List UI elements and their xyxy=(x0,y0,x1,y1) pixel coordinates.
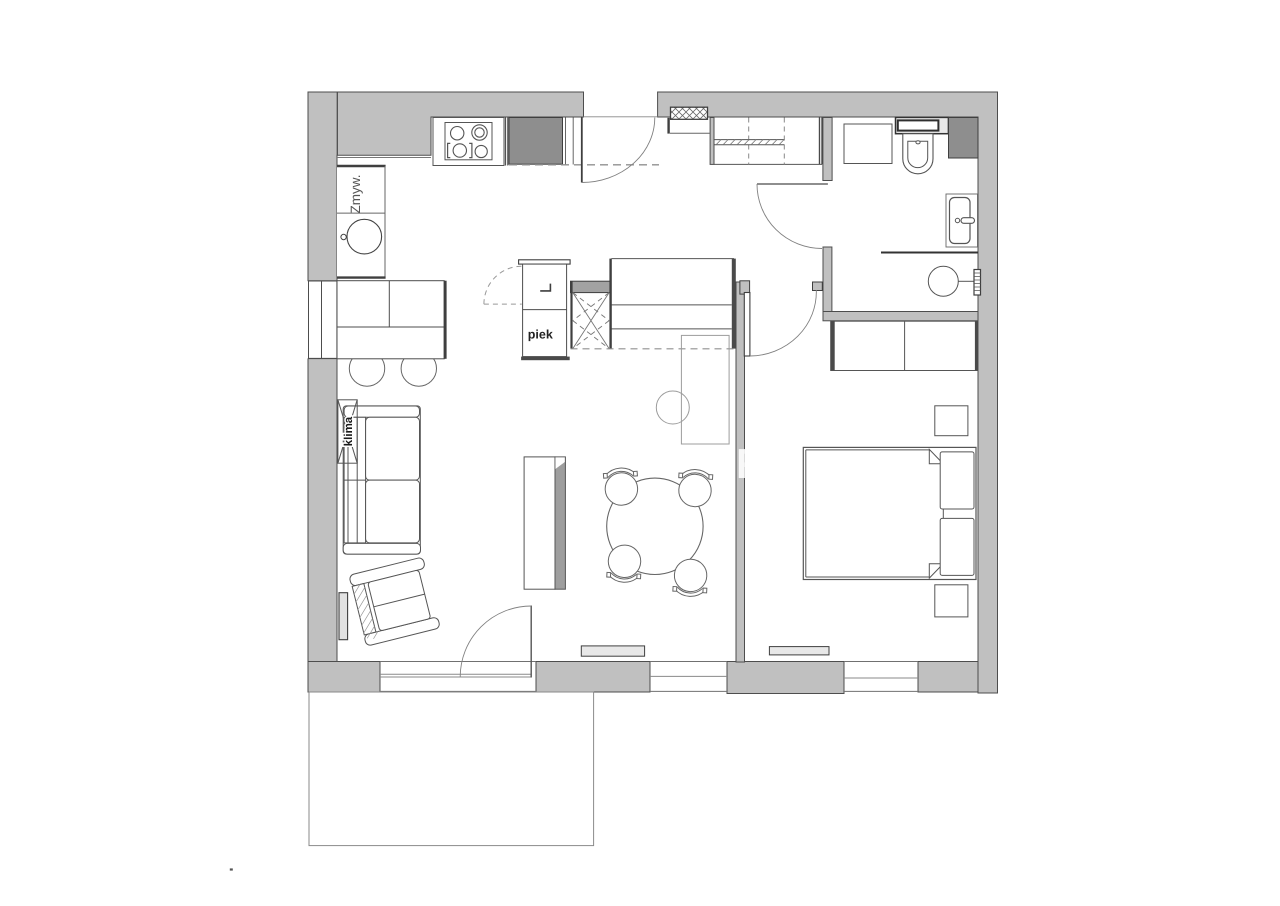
svg-text:R: R xyxy=(736,440,766,487)
svg-text:klima: klima xyxy=(343,416,355,446)
svg-text:Zmyw.: Zmyw. xyxy=(348,175,363,214)
svg-text:piek: piek xyxy=(528,328,553,342)
